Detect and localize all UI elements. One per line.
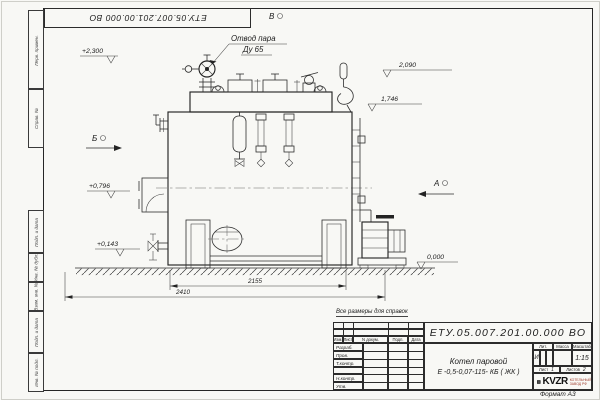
sig-razrab: Разраб. [333, 343, 363, 351]
svg-text:+0,143: +0,143 [97, 241, 118, 248]
product-name-line2: Е -0,5-0,07-115- КБ ( ЖК ) [437, 369, 519, 376]
svg-text:2410: 2410 [175, 289, 191, 296]
rev-divider-3 [388, 322, 389, 336]
rev-header-izm: Изм. [333, 336, 343, 343]
view-a-arrow: А [418, 179, 454, 197]
view-b-arrow: Б [86, 134, 122, 151]
view-a-label: А [433, 179, 439, 188]
sheet-label: Лист [539, 367, 548, 372]
product-name-cell: Котел паровой Е -0,5-0,07-115- КБ ( ЖК ) [424, 343, 533, 390]
rev-header-data: Дата [408, 336, 424, 343]
view-b-label: Б [92, 134, 97, 143]
lit-cell-3 [546, 350, 553, 366]
view-v-label: В [269, 12, 275, 21]
scale-header: Масштаб [572, 343, 592, 350]
elevation-2090: 2,090 [383, 62, 452, 77]
svg-text:+0,796: +0,796 [89, 183, 110, 190]
sig-hline-1 [333, 351, 424, 352]
designation-cell: ЕТУ.05.007.201.00.000 ВО [424, 322, 592, 343]
svg-text:1,746: 1,746 [381, 96, 398, 103]
drum-hatches [228, 74, 300, 92]
rev-header-ndokum: N докум. [353, 336, 388, 343]
svg-text:0,000: 0,000 [427, 254, 444, 261]
svg-text:2155: 2155 [247, 278, 263, 285]
rev-divider-2 [353, 322, 354, 336]
callout-line2: Ду 65 [242, 45, 264, 54]
lifting-lugs [212, 86, 326, 92]
manhole [208, 225, 246, 253]
elevation-zero: 0,000 [417, 254, 458, 269]
mass-value-cell [553, 350, 572, 366]
sig-hline-5 [333, 382, 424, 383]
feed-elbow [139, 178, 168, 212]
designation-text: ЕТУ.05.007.201.00.000 ВО [430, 327, 586, 339]
boiler-shell [168, 92, 352, 265]
svg-text:2,090: 2,090 [398, 62, 416, 69]
sig-hline-4 [333, 374, 424, 375]
sheets-label: Листов [566, 367, 580, 372]
rev-divider-1 [343, 322, 344, 336]
rev-header-podp: Подп. [388, 336, 408, 343]
view-v-marker: В [269, 12, 283, 21]
safety-valve [301, 63, 353, 112]
elevation-2300: +2,300 [80, 48, 118, 63]
elevation-0143: +0,143 [95, 241, 140, 256]
gauge-glass-1 [256, 114, 266, 167]
callout-line1: Отвод пара [231, 34, 276, 43]
sheets-cell: Листов 2 [560, 366, 592, 373]
kvzr-logo-icon [537, 376, 541, 388]
mass-header: Масса [553, 343, 572, 350]
ground-line [75, 268, 435, 275]
product-name-line1: Котел паровой [450, 357, 507, 366]
sig-nkontr: Н.контр. [333, 374, 363, 382]
reference-note: Все размеры для справок [336, 309, 408, 317]
elevation-0796: +0,796 [87, 183, 130, 198]
feed-pump-unit [358, 210, 406, 268]
logo-cell: KVZR КОТЕЛЬНЫЙ ЗАВОД РФ [533, 373, 592, 390]
lit-header: Лит. [533, 343, 553, 350]
right-duct [352, 118, 365, 222]
drawing-sheet: ЕТУ.05.007.201.00.000 ВО Перв. примен. С… [0, 0, 600, 400]
rev-header-list: Лист [343, 336, 353, 343]
lit-value-cell: И [533, 350, 540, 366]
rev-divider-4 [408, 322, 409, 336]
steam-outlet-callout: Отвод пара Ду 65 [210, 34, 288, 64]
logo-text: KVZR [543, 376, 568, 387]
rev-row-2 [333, 329, 424, 336]
sig-hline-3 [333, 367, 424, 368]
sig-empty [333, 367, 363, 374]
left-upper-nozzle [153, 115, 168, 132]
sheets-value: 2 [583, 367, 586, 373]
sig-hline-2 [333, 359, 424, 360]
sheet-cell: Лист 1 [533, 366, 560, 373]
rev-row-1 [333, 322, 424, 329]
svg-text:+2,300: +2,300 [82, 48, 103, 55]
scale-value-cell: 1:15 [572, 350, 592, 366]
sheet-value: 1 [551, 367, 554, 373]
elevation-1746: 1,746 [368, 96, 422, 111]
drain-valve [148, 234, 168, 260]
sig-utv: Утв. [333, 382, 363, 390]
format-note: Формат А3 [540, 391, 576, 398]
level-column [233, 112, 246, 167]
sig-prov: Пров. [333, 351, 363, 359]
sig-tkontr: Т.контр. [333, 359, 363, 367]
logo-subtext: КОТЕЛЬНЫЙ ЗАВОД РФ [570, 378, 591, 386]
gauge-glass-2 [284, 114, 294, 167]
